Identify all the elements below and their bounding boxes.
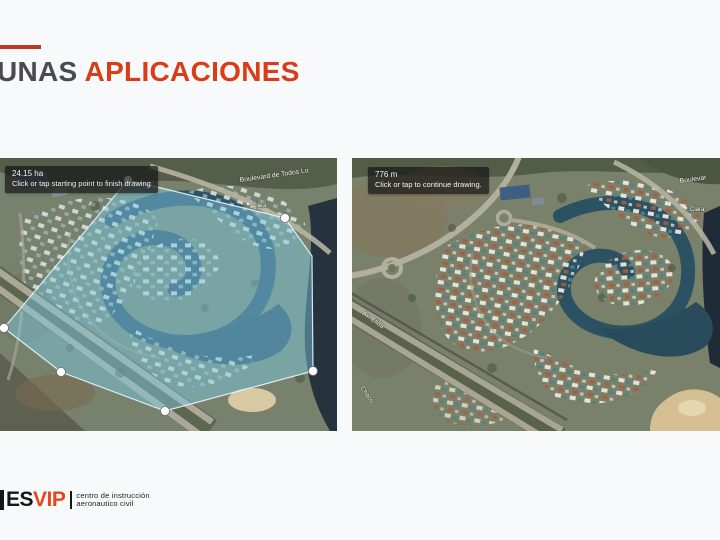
tooltip-instruction: Click or tap starting point to finish dr…: [12, 179, 151, 189]
measurement-value: 24.15 ha: [12, 169, 151, 179]
page-title: UNASAPLICACIONES: [0, 56, 300, 88]
vertex-handle[interactable]: [281, 214, 290, 223]
map-screenshot-area-measure[interactable]: Boulevard de Todos Lo Clara 24.15 ha Cli…: [0, 158, 337, 431]
logo-wordmark: ESVIP: [6, 489, 65, 511]
logo-black-part: ES: [6, 488, 33, 511]
accent-dash: [0, 45, 41, 49]
street-label-clara: Clara: [252, 203, 267, 209]
map-screenshot-distance-measure[interactable]: Boulevar Clara Av. Elida Chaco 776 m Cli…: [352, 158, 720, 431]
title-prefix: UNAS: [0, 56, 78, 87]
logo-caption-line2: aeronautico civil: [76, 500, 149, 509]
vertex-handle[interactable]: [309, 367, 318, 376]
slide-root: UNASAPLICACIONES: [0, 0, 720, 540]
tooltip-instruction: Click or tap to continue drawing.: [375, 180, 482, 190]
footer-logo: ESVIP centro de instrucción aeronautico …: [0, 489, 150, 511]
logo-accent-part: VIP: [33, 488, 65, 511]
vertex-handle[interactable]: [0, 324, 9, 333]
measure-tooltip-right: 776 m Click or tap to continue drawing.: [368, 167, 489, 194]
vertex-handle[interactable]: [161, 407, 170, 416]
vertex-handle[interactable]: [57, 368, 66, 377]
title-accent: APLICACIONES: [85, 56, 300, 87]
satellite-map-right: Boulevar Clara Av. Elida Chaco: [352, 158, 720, 431]
measurement-value: 776 m: [375, 170, 482, 180]
logo-separator: [70, 491, 72, 509]
logo-partial-letter: [0, 490, 4, 510]
satellite-map-left: Boulevard de Todos Lo Clara: [0, 158, 337, 431]
measure-tooltip-left: 24.15 ha Click or tap starting point to …: [5, 166, 158, 193]
logo-caption: centro de instrucción aeronautico civil: [76, 492, 149, 509]
street-label-clara: Clara: [690, 207, 705, 213]
